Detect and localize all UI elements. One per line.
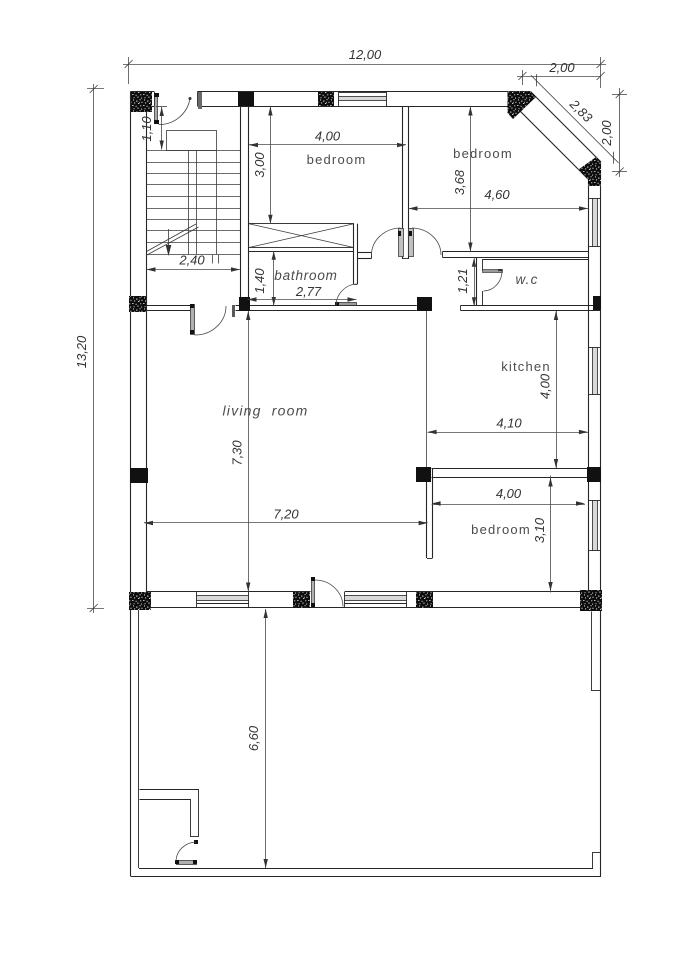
svg-text:4,10: 4,10 [496,416,522,431]
svg-text:3,68: 3,68 [452,169,467,195]
svg-text:2,00: 2,00 [548,60,575,75]
svg-text:kitchen: kitchen [501,359,551,374]
svg-text:w.c: w.c [515,272,538,287]
svg-text:4,00: 4,00 [538,373,553,399]
svg-text:living room: living room [223,403,309,419]
svg-text:bedroom: bedroom [307,152,367,167]
svg-text:3,10: 3,10 [532,517,547,543]
svg-text:13,20: 13,20 [74,335,89,368]
svg-text:12,00: 12,00 [349,47,382,62]
svg-text:4,60: 4,60 [484,187,510,202]
svg-text:2,00: 2,00 [599,120,614,147]
svg-text:1,10: 1,10 [139,116,154,142]
svg-text:4,00: 4,00 [496,486,522,501]
svg-text:1,21: 1,21 [455,268,470,293]
svg-text:1,40: 1,40 [252,268,267,294]
svg-text:3,00: 3,00 [252,152,267,178]
svg-text:2,77: 2,77 [295,284,322,299]
svg-text:bedroom: bedroom [453,146,513,161]
svg-text:2,40: 2,40 [178,253,205,268]
svg-text:bedroom: bedroom [471,522,531,537]
svg-text:6,60: 6,60 [246,725,261,751]
svg-text:7,30: 7,30 [230,440,245,466]
svg-text:bathroom: bathroom [274,268,337,283]
svg-text:7,20: 7,20 [273,507,299,522]
svg-text:4,00: 4,00 [315,129,341,144]
